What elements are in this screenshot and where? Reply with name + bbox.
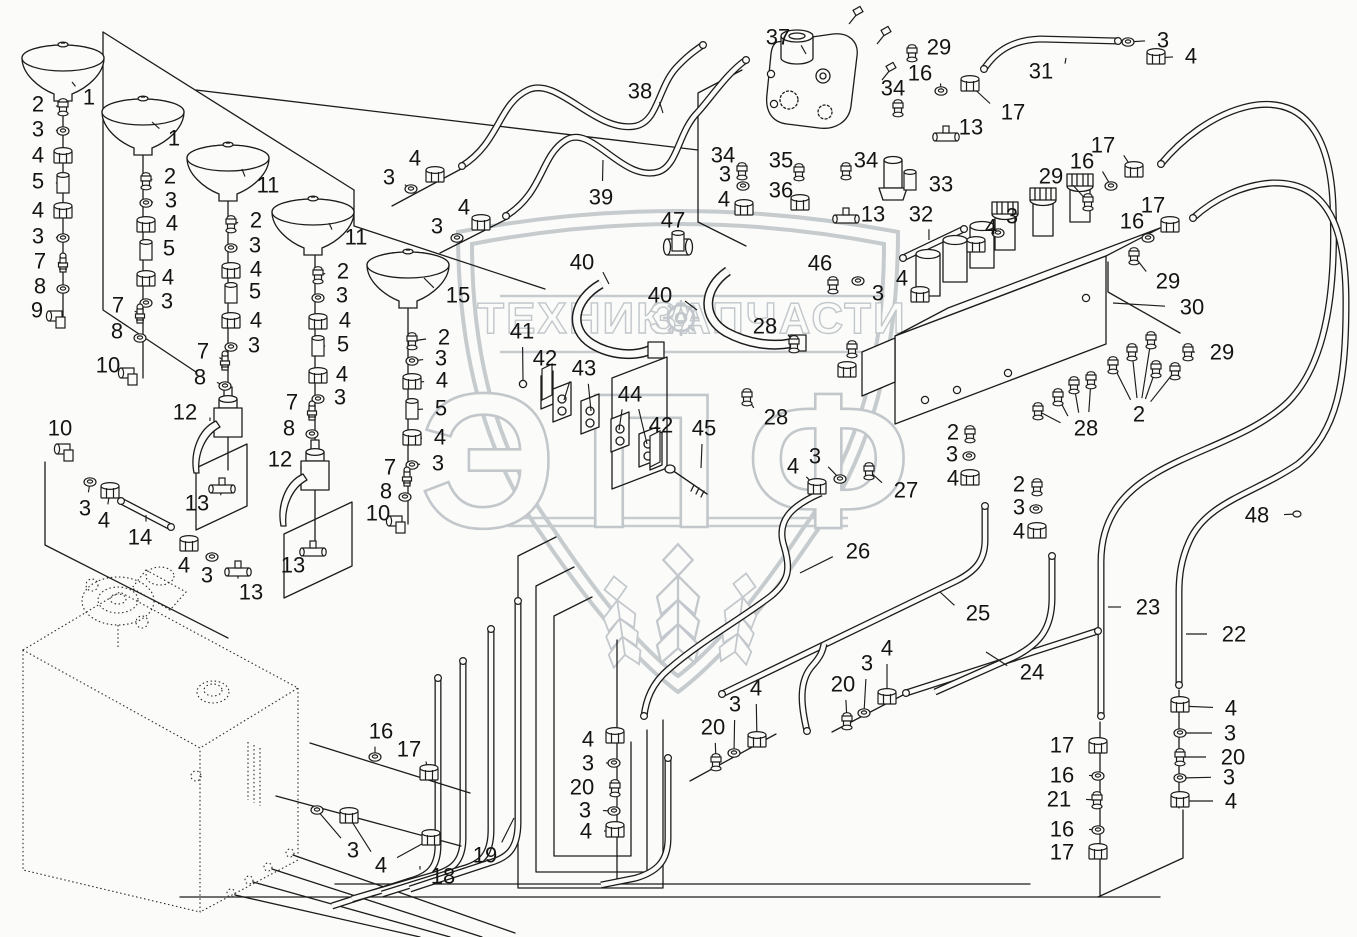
callout-label: 7	[384, 455, 396, 480]
ring-fitting-icon	[728, 749, 740, 757]
grease-zerk-icon	[59, 253, 68, 272]
callout-label: 15	[446, 283, 470, 308]
callout-label: 11	[257, 173, 280, 198]
callout-label: 20	[570, 775, 594, 800]
nut-fitting-icon	[309, 368, 327, 383]
callout-label: 3	[165, 188, 177, 213]
elbow-fitting-icon	[46, 311, 65, 328]
callout-label: 4	[336, 362, 348, 387]
nut-fitting-icon	[1028, 523, 1046, 538]
callout-label: 29	[1210, 340, 1234, 365]
nipple-fitting-icon	[847, 341, 857, 358]
callout-label: 4	[339, 308, 351, 333]
callout-label: 4	[32, 143, 44, 168]
nipple-fitting-icon	[1092, 792, 1102, 809]
callout-label: 5	[32, 169, 44, 194]
callout-label: 17	[1141, 193, 1165, 218]
nut-fitting-icon	[1125, 162, 1143, 177]
nut-fitting-icon	[426, 167, 444, 182]
nipple-fitting-icon	[1108, 357, 1118, 374]
callout-label: 24	[1020, 660, 1044, 685]
callout-label: 40	[570, 250, 594, 275]
callout-label: 17	[1091, 133, 1115, 158]
callout-label: 4	[947, 466, 959, 491]
ring-fitting-icon	[57, 285, 69, 293]
tee-fitting-icon	[209, 478, 235, 493]
ring-fitting-icon	[219, 382, 231, 390]
nipple-fitting-icon	[742, 389, 752, 406]
ring-fitting-icon	[399, 493, 411, 501]
callout-label: 37	[766, 25, 790, 50]
nut-fitting-icon	[180, 536, 198, 551]
callout-label: 4	[409, 146, 421, 171]
ring-fitting-icon	[1142, 234, 1154, 242]
ring-fitting-icon	[852, 277, 864, 285]
callout-label: 3	[719, 162, 731, 187]
nipple-fitting-icon	[1033, 403, 1043, 420]
callout-label: 8	[283, 416, 295, 441]
nut-fitting-icon	[911, 287, 929, 302]
nipple-fitting-icon	[893, 100, 903, 117]
callout-label: 16	[908, 61, 932, 86]
callout-label: 41	[510, 319, 534, 344]
callout-label: 45	[692, 416, 716, 441]
grease-zerk-icon	[308, 401, 317, 420]
watermark-big-letters: ЭПФ	[420, 353, 936, 568]
ring-fitting-icon	[737, 182, 749, 190]
nipple-fitting-icon	[141, 173, 151, 190]
callout-label: 4	[436, 368, 448, 393]
ring-fitting-icon	[834, 475, 846, 483]
bore-hole-icon	[1082, 294, 1089, 301]
callout-label: 29	[1039, 164, 1063, 189]
callout-label: 39	[589, 185, 613, 210]
callout-label: 29	[927, 35, 951, 60]
bore-hole-icon	[767, 70, 774, 77]
callout-label: 10	[48, 416, 72, 441]
callout-label: 16	[1050, 763, 1074, 788]
callout-label: 8	[111, 319, 123, 344]
nipple-fitting-icon	[1175, 749, 1185, 766]
hydraulic-lines-parts-diagram: ТЕХНИКА ЗАПЧАСТИ ЭПФ	[0, 0, 1357, 937]
sleeve-fitting-icon	[904, 170, 916, 190]
callout-label: 2	[164, 164, 176, 189]
callout-label: 9	[31, 298, 43, 323]
callout-label: 36	[769, 178, 793, 203]
nipple-fitting-icon	[58, 99, 68, 116]
nut-fitting-icon	[1089, 844, 1107, 859]
nipple-fitting-icon	[1086, 372, 1096, 389]
callout-label: 3	[729, 692, 741, 717]
callout-label: 3	[1224, 721, 1236, 746]
callout-label: 12	[173, 400, 197, 425]
nut-fitting-icon	[1089, 738, 1107, 753]
callout-label: 11	[345, 225, 368, 250]
tee-fitting-icon	[225, 561, 251, 576]
nut-fitting-icon	[54, 203, 72, 218]
part-33	[879, 157, 907, 201]
callout-label: 4	[718, 187, 730, 212]
callout-label: 4	[32, 198, 44, 223]
bolt-stud-icon	[877, 26, 891, 44]
callout-label: 17	[1001, 100, 1025, 125]
callout-label: 48	[1245, 503, 1269, 528]
nut-fitting-icon	[1161, 217, 1179, 232]
nipple-fitting-icon	[1170, 363, 1180, 380]
callout-label: 2	[1133, 402, 1145, 427]
ring-fitting-icon	[225, 343, 237, 351]
callout-label: 8	[194, 365, 206, 390]
callout-label: 3	[383, 165, 395, 190]
nipple-fitting-icon	[711, 754, 721, 771]
callout-label: 4	[166, 211, 178, 236]
nut-fitting-icon	[808, 479, 826, 494]
callout-label: 17	[1050, 733, 1074, 758]
nut-fitting-icon	[403, 430, 421, 445]
callout-label: 4	[375, 853, 387, 878]
callout-label: 4	[98, 508, 110, 533]
callout-label: 2	[337, 259, 349, 284]
ring-fitting-icon	[1030, 505, 1042, 513]
nut-fitting-icon	[309, 314, 327, 329]
callout-label: 23	[1136, 595, 1160, 620]
callout-label: 4	[178, 553, 190, 578]
nipple-fitting-icon	[1129, 248, 1139, 265]
nut-fitting-icon	[606, 822, 624, 837]
callout-label: 40	[648, 283, 672, 308]
ring-fitting-icon	[306, 430, 318, 438]
nut-fitting-icon	[791, 195, 809, 210]
callout-label: 4	[881, 636, 893, 661]
callout-label: 8	[34, 274, 46, 299]
callout-label: 3	[809, 444, 821, 469]
tube-38	[462, 45, 703, 166]
sleeve-fitting-icon	[406, 399, 418, 419]
callout-label: 4	[1225, 789, 1237, 814]
callout-label: 16	[369, 719, 393, 744]
ring-fitting-icon	[406, 357, 418, 365]
callout-label: 7	[197, 339, 209, 364]
nipple-fitting-icon	[1032, 479, 1042, 496]
sleeve-fitting-icon	[312, 336, 324, 356]
callout-label: 4	[250, 308, 262, 333]
ring-fitting-icon	[405, 185, 417, 193]
bore-hole-icon	[921, 396, 928, 403]
ring-fitting-icon	[84, 478, 96, 486]
ring-fitting-icon	[451, 234, 463, 242]
callout-label: 5	[249, 279, 261, 304]
callout-label: 5	[337, 332, 349, 357]
callout-label: 4	[750, 676, 762, 701]
callout-label: 42	[649, 413, 673, 438]
nipple-fitting-icon	[226, 216, 236, 233]
callout-label: 1	[83, 85, 95, 110]
ring-fitting-icon	[57, 234, 69, 242]
callout-label: 3	[32, 117, 44, 142]
nipple-fitting-icon	[789, 336, 799, 353]
ring-fitting-icon	[206, 553, 218, 561]
pipe-22	[1179, 183, 1346, 685]
callout-label: 20	[701, 715, 725, 740]
callout-label: 3	[946, 442, 958, 467]
nut-fitting-icon	[1171, 697, 1189, 712]
callout-label: 4	[787, 454, 799, 479]
nut-fitting-icon	[54, 148, 72, 163]
callout-label: 12	[268, 447, 292, 472]
tube-14	[121, 501, 171, 527]
callout-label: 18	[431, 864, 455, 889]
nut-fitting-icon	[137, 271, 155, 286]
nipple-fitting-icon	[794, 164, 804, 181]
sleeve-fitting-icon	[225, 283, 237, 303]
callout-label: 28	[764, 405, 788, 430]
nipple-fitting-icon	[313, 267, 323, 284]
oiler-funnel	[272, 196, 354, 255]
nipple-fitting-icon	[907, 45, 917, 62]
callout-label: 3	[334, 385, 346, 410]
callout-label: 4	[434, 425, 446, 450]
nut-fitting-icon	[748, 732, 766, 747]
ring-fitting-icon	[57, 127, 69, 135]
callout-label: 3	[32, 224, 44, 249]
oiler-funnel	[367, 249, 449, 308]
small-ring-icon	[1293, 511, 1301, 517]
callout-label: 3	[1157, 28, 1169, 53]
callout-label: 2	[32, 92, 44, 117]
callout-label: 2	[250, 208, 262, 233]
callout-label: 4	[458, 195, 470, 220]
callout-label: 3	[161, 289, 173, 314]
tee-fitting-icon	[933, 126, 959, 141]
callout-label: 25	[966, 601, 990, 626]
nut-fitting-icon	[340, 808, 358, 823]
ring-fitting-icon	[134, 334, 146, 342]
callout-label: 17	[1050, 840, 1074, 865]
callout-label: 20	[831, 672, 855, 697]
nipple-fitting-icon	[1151, 361, 1161, 378]
ring-fitting-icon	[312, 294, 324, 302]
nut-fitting-icon	[1171, 792, 1189, 807]
nut-fitting-icon	[222, 313, 240, 328]
callout-label: 30	[1180, 295, 1204, 320]
ring-fitting-icon	[1092, 826, 1104, 834]
callout-label: 13	[861, 202, 885, 227]
ring-fitting-icon	[963, 452, 975, 460]
callout-label: 7	[286, 390, 298, 415]
nipple-fitting-icon	[1183, 344, 1193, 361]
bore-hole-icon	[770, 100, 777, 107]
callout-label: 44	[618, 382, 642, 407]
grease-zerk-icon	[221, 351, 230, 370]
sleeve-fitting-icon	[672, 231, 684, 251]
callout-label: 28	[1074, 416, 1098, 441]
nut-fitting-icon	[422, 830, 440, 845]
ring-fitting-icon	[858, 709, 870, 717]
elbow-fitting-icon	[118, 368, 137, 385]
callout-label: 32	[909, 202, 933, 227]
nut-fitting-icon	[101, 483, 119, 498]
callout-label: 5	[435, 396, 447, 421]
callout-label: 13	[281, 553, 305, 578]
ring-fitting-icon	[1105, 182, 1117, 190]
callout-label: 14	[128, 525, 152, 550]
nipple-fitting-icon	[407, 333, 417, 350]
ring-fitting-icon	[1174, 729, 1186, 737]
callout-label: 5	[163, 236, 175, 261]
nipple-fitting-icon	[841, 163, 851, 180]
callout-label: 34	[854, 148, 878, 173]
nut-fitting-icon	[838, 362, 856, 377]
ring-fitting-icon	[140, 199, 152, 207]
grease-zerk-icon	[136, 304, 145, 323]
part-41-screw	[519, 380, 526, 387]
callout-label: 3	[1013, 495, 1025, 520]
callout-label: 47	[661, 208, 685, 233]
callout-label: 43	[572, 356, 596, 381]
callout-label: 3	[861, 651, 873, 676]
tank-pump-assembly	[82, 567, 186, 648]
watermark-text-right: ЗАПЧАСТИ	[649, 294, 906, 343]
callout-label: 1	[168, 126, 180, 151]
nut-fitting-icon	[961, 470, 979, 485]
callout-label: 3	[1006, 204, 1018, 229]
nipple-fitting-icon	[610, 780, 620, 797]
callout-label: 13	[185, 491, 209, 516]
callout-label: 31	[1029, 59, 1053, 84]
callout-label: 3	[79, 496, 91, 521]
callout-label: 2	[1013, 472, 1025, 497]
ring-fitting-icon	[1174, 774, 1186, 782]
callout-label: 26	[846, 539, 870, 564]
callout-label: 34	[881, 76, 905, 101]
callout-label: 35	[769, 148, 793, 173]
nipple-fitting-icon	[1127, 344, 1137, 361]
nut-fitting-icon	[472, 215, 490, 230]
callout-label: 3	[431, 214, 443, 239]
callout-label: 3	[872, 281, 884, 306]
callout-label: 33	[929, 172, 953, 197]
callout-label: 4	[1013, 519, 1025, 544]
callout-label: 19	[473, 843, 497, 868]
bolt-stud-icon	[849, 6, 863, 24]
ring-fitting-icon	[935, 87, 947, 95]
callout-label: 3	[201, 563, 213, 588]
nut-fitting-icon	[137, 217, 155, 232]
callout-label: 4	[1225, 696, 1237, 721]
bore-hole-icon	[1004, 369, 1011, 376]
nipple-fitting-icon	[1053, 389, 1063, 406]
nut-fitting-icon	[961, 76, 979, 91]
callout-label: 3	[432, 451, 444, 476]
callout-label: 13	[959, 115, 983, 140]
nipple-fitting-icon	[737, 163, 747, 180]
callout-label: 46	[808, 251, 832, 276]
sleeve-fitting-icon	[57, 173, 69, 193]
callout-label: 28	[753, 314, 777, 339]
ring-fitting-icon	[1122, 38, 1134, 46]
callout-label: 4	[1185, 44, 1197, 69]
callout-label: 13	[239, 580, 263, 605]
callout-label: 4	[582, 727, 594, 752]
bore-hole-icon	[953, 386, 960, 393]
ring-fitting-icon	[608, 807, 620, 815]
callout-label: 42	[533, 346, 557, 371]
callout-label: 22	[1222, 622, 1246, 647]
nipple-fitting-icon	[1083, 194, 1093, 211]
nipple-fitting-icon	[842, 713, 852, 730]
ring-fitting-icon	[311, 806, 323, 814]
tube-39	[506, 60, 746, 216]
callout-label: 3	[249, 233, 261, 258]
nipple-fitting-icon	[1146, 332, 1156, 349]
nut-fitting-icon	[420, 765, 438, 780]
callout-label: 3	[347, 838, 359, 863]
callout-label: 21	[1047, 787, 1071, 812]
nut-fitting-icon	[222, 263, 240, 278]
callout-label: 7	[112, 293, 124, 318]
nut-fitting-icon	[967, 237, 985, 252]
callout-label: 4	[985, 215, 997, 240]
callout-label: 4	[580, 819, 592, 844]
nut-fitting-icon	[878, 689, 896, 704]
callout-label: 10	[366, 501, 390, 526]
ring-fitting-icon	[225, 244, 237, 252]
tee-fitting-icon	[833, 208, 859, 223]
nipple-fitting-icon	[828, 277, 838, 294]
sleeve-fitting-icon	[140, 240, 152, 260]
callout-label: 3	[248, 333, 260, 358]
callout-label: 29	[1156, 269, 1180, 294]
elbow-fitting-icon	[54, 444, 73, 461]
callout-label: 4	[162, 265, 174, 290]
ring-fitting-icon	[1092, 772, 1104, 780]
ring-fitting-icon	[608, 759, 620, 767]
callout-label: 3	[1223, 765, 1235, 790]
nipple-fitting-icon	[864, 463, 874, 480]
ring-fitting-icon	[369, 753, 381, 761]
grease-zerk-icon	[403, 467, 412, 486]
nipple-fitting-icon	[1069, 377, 1079, 394]
callout-label: 7	[34, 249, 46, 274]
callout-label: 17	[397, 737, 421, 762]
callout-label: 3	[582, 751, 594, 776]
callout-label: 16	[1050, 817, 1074, 842]
callout-label: 4	[896, 266, 908, 291]
nut-fitting-icon	[403, 374, 421, 389]
callout-label: 27	[894, 478, 918, 503]
callout-label: 10	[96, 353, 120, 378]
nut-fitting-icon	[735, 200, 753, 215]
callout-label: 38	[628, 79, 652, 104]
parts-diagram-page: ТЕХНИКА ЗАПЧАСТИ ЭПФ	[0, 0, 1357, 937]
nut-fitting-icon	[606, 728, 624, 743]
callout-label: 3	[336, 283, 348, 308]
nipple-fitting-icon	[965, 426, 975, 443]
